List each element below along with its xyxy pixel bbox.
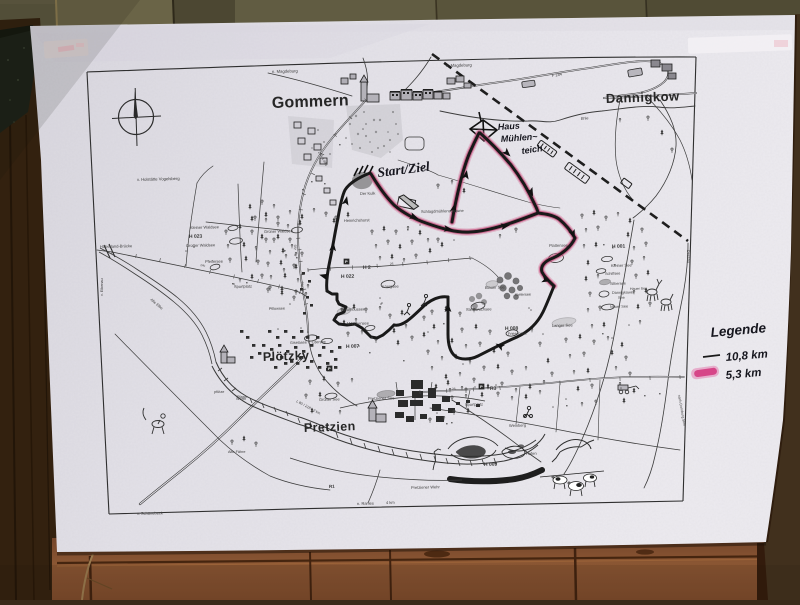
svg-text:226: 226 — [293, 244, 297, 250]
svg-text:Haberland-Brücke: Haberland-Brücke — [100, 243, 133, 249]
svg-text:4 km: 4 km — [386, 500, 395, 505]
svg-text:Pretziener See: Pretziener See — [368, 395, 395, 401]
svg-text:H 007: H 007 — [346, 344, 360, 350]
svg-text:pfütze: pfütze — [214, 390, 224, 394]
svg-text:Sportplatz: Sportplatz — [234, 284, 252, 289]
svg-text:Hauer See: Hauer See — [630, 287, 647, 291]
svg-text:Langer See: Langer See — [552, 322, 574, 328]
svg-text:Dannigkow: Dannigkow — [606, 88, 681, 106]
svg-text:Dessau: Dessau — [686, 250, 690, 263]
svg-text:Haus: Haus — [497, 120, 520, 132]
svg-text:28: 28 — [452, 387, 456, 391]
svg-text:Silbersee: Silbersee — [610, 282, 626, 286]
svg-text:Blauer See: Blauer See — [485, 284, 506, 290]
svg-text:14c: 14c — [200, 263, 206, 268]
svg-text:v. Schönebeck: v. Schönebeck — [137, 510, 163, 516]
svg-text:H 009: H 009 — [484, 462, 498, 468]
svg-text:Grüner See: Grüner See — [319, 396, 341, 402]
svg-text:Kleiner Waldsee: Kleiner Waldsee — [190, 224, 220, 230]
svg-text:Gommern: Gommern — [272, 92, 350, 112]
svg-text:P: P — [480, 384, 483, 389]
svg-text:H 2: H 2 — [363, 265, 371, 271]
svg-text:Hafen: Hafen — [526, 451, 537, 456]
svg-text:Kolumbussee: Kolumbussee — [341, 306, 366, 312]
svg-text:H 023: H 023 — [189, 234, 203, 240]
svg-text:Pfeifersee: Pfeifersee — [205, 259, 224, 264]
svg-text:H 008: H 008 — [505, 326, 519, 332]
svg-text:216: 216 — [300, 281, 304, 287]
svg-text:H 022: H 022 — [341, 274, 355, 280]
svg-text:Pretziener Wehr: Pretziener Wehr — [411, 484, 441, 490]
svg-text:Ehle: Ehle — [581, 116, 589, 121]
svg-text:Steinbruchsee: Steinbruchsee — [466, 306, 492, 312]
svg-text:Alte Fähre: Alte Fähre — [228, 450, 246, 454]
svg-text:See: See — [618, 296, 625, 300]
svg-text:Pretzien: Pretzien — [304, 419, 356, 435]
svg-text:n. Magdeburg: n. Magdeburg — [446, 62, 473, 68]
svg-text:Sportplatz: Sportplatz — [465, 402, 483, 407]
svg-text:n. Ranies: n. Ranies — [357, 501, 374, 506]
svg-text:n. Magdeburg: n. Magdeburg — [272, 68, 299, 74]
svg-text:Grüner Waldsee: Grüner Waldsee — [264, 228, 294, 234]
svg-text:Dannigkower: Dannigkower — [612, 290, 635, 295]
svg-text:v. Elbenau: v. Elbenau — [100, 278, 104, 296]
svg-text:Neuer See: Neuer See — [610, 305, 628, 309]
svg-text:R1: R1 — [329, 484, 335, 489]
svg-text:Pillowsee: Pillowsee — [269, 307, 285, 311]
svg-text:P: P — [328, 366, 331, 371]
svg-text:Heinrichshorst: Heinrichshorst — [344, 217, 371, 223]
svg-text:Wörth: Wörth — [236, 397, 246, 401]
svg-text:Märchensee: Märchensee — [347, 320, 370, 326]
svg-text:P: P — [345, 259, 348, 264]
svg-text:H 001: H 001 — [612, 244, 626, 250]
svg-text:Königsee: Königsee — [382, 284, 400, 289]
svg-text:Der Kulk: Der Kulk — [360, 191, 375, 196]
svg-text:R3: R3 — [490, 386, 497, 392]
svg-text:Plattensee: Plattensee — [549, 242, 569, 248]
svg-text:25: 25 — [390, 262, 394, 266]
svg-text:Plötzky: Plötzky — [263, 348, 310, 364]
svg-text:Kiefersee: Kiefersee — [515, 293, 531, 297]
svg-text:Großer Waldsee: Großer Waldsee — [186, 242, 216, 248]
svg-text:Friesensee: Friesensee — [508, 332, 527, 336]
svg-text:Weinberg: Weinberg — [509, 423, 526, 428]
svg-text:Schilfsee: Schilfsee — [605, 272, 621, 276]
